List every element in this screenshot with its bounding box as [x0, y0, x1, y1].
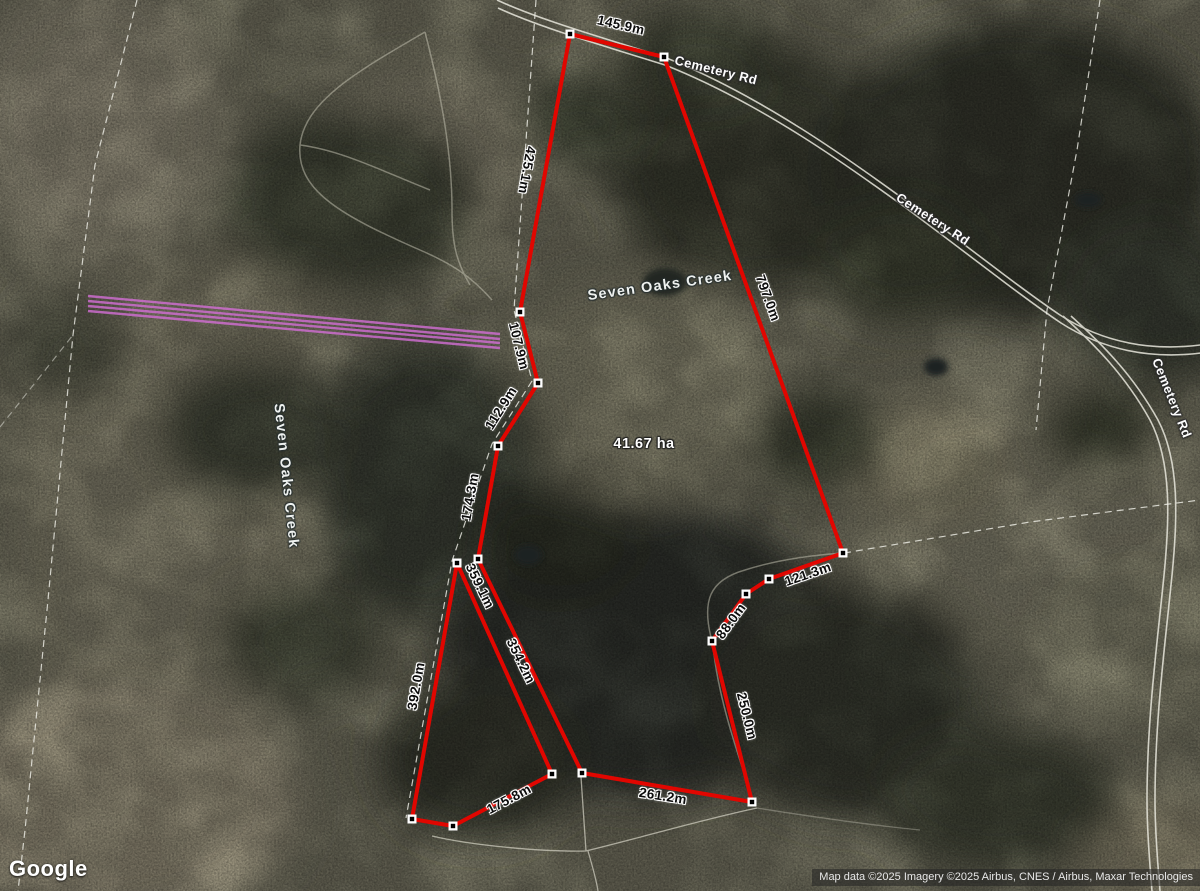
boundary-vertex[interactable] — [765, 575, 774, 584]
google-logo[interactable]: Google — [9, 856, 88, 882]
boundary-vertex[interactable] — [566, 30, 575, 39]
boundary-vertex[interactable] — [839, 549, 848, 558]
powerline-overlay — [88, 306, 500, 343]
boundary-vertex[interactable] — [516, 308, 525, 317]
map-canvas[interactable]: 145.9m425.1m107.9m112.9m174.3m359.1m354.… — [0, 0, 1200, 891]
parcel-boundary-sliver[interactable] — [412, 563, 552, 826]
powerline-overlay — [88, 301, 500, 339]
boundary-vertex[interactable] — [742, 590, 751, 599]
boundary-vertex[interactable] — [748, 798, 757, 807]
measurement-overlay — [0, 0, 1200, 891]
boundary-vertex[interactable] — [408, 815, 417, 824]
boundary-vertex[interactable] — [534, 379, 543, 388]
boundary-vertex[interactable] — [449, 822, 458, 831]
boundary-vertex[interactable] — [548, 770, 557, 779]
map-attribution: Map data ©2025 Imagery ©2025 Airbus, CNE… — [812, 869, 1200, 886]
boundary-vertex[interactable] — [494, 442, 503, 451]
boundary-vertex[interactable] — [474, 555, 483, 564]
boundary-vertex[interactable] — [660, 53, 669, 62]
boundary-vertex[interactable] — [708, 637, 717, 646]
parcel-boundary-main[interactable] — [478, 34, 843, 802]
boundary-vertex[interactable] — [578, 769, 587, 778]
boundary-vertex[interactable] — [453, 559, 462, 568]
